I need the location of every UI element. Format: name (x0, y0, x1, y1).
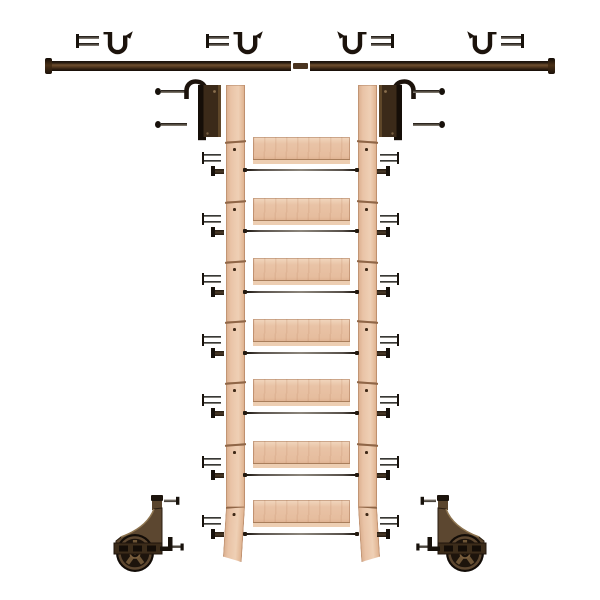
step-bolt-icon (386, 408, 390, 418)
step-screw-icon (380, 221, 397, 223)
step-screw-icon (380, 281, 397, 283)
joint-screw-hole (365, 513, 368, 516)
step-screw-icon (380, 275, 397, 277)
step-screw-icon (380, 402, 397, 404)
side-rail-segment (358, 85, 377, 142)
joint-screw-hole (232, 513, 235, 516)
step-screw-icon (380, 523, 397, 525)
step-bolt-icon (386, 470, 390, 480)
rail-scarf-joint (225, 260, 246, 264)
step-bolt-icon (215, 351, 224, 356)
step-screw-icon (380, 336, 397, 338)
step-screw-icon (204, 154, 221, 156)
step-screw-icon (397, 521, 399, 527)
rail-scarf-joint (357, 443, 378, 447)
ladder-step (253, 441, 350, 468)
joint-screw-hole (365, 451, 368, 454)
rail-scarf-joint (357, 260, 378, 264)
step-support-rod (246, 474, 356, 476)
step-screw-icon (204, 336, 221, 338)
ladder-step (253, 198, 350, 225)
step-support-rod (246, 230, 356, 232)
rail-scarf-joint (225, 140, 246, 144)
roller-assembly-left (88, 486, 188, 578)
step-bolt-icon (377, 473, 386, 478)
step-fastener-set-left (202, 456, 225, 478)
step-support-rod (246, 291, 356, 293)
side-rail-segment (358, 262, 377, 322)
joint-screw-hole (233, 451, 236, 454)
step-fastener-set-right (376, 273, 399, 295)
joint-screw-hole (365, 148, 368, 151)
step-screw-icon (204, 342, 221, 344)
step-screw-icon (204, 275, 221, 277)
side-rail-segment (358, 202, 377, 262)
roller-assembly-right (412, 486, 512, 578)
step-screw-icon (380, 458, 397, 460)
step-fastener-set-right (376, 456, 399, 478)
side-rail-segment (358, 383, 377, 445)
rail-scarf-joint (225, 320, 246, 324)
step-screw-icon (397, 340, 399, 346)
step-bolt-icon (386, 348, 390, 358)
product-image-rolling-ladder-kit (0, 0, 600, 600)
step-screw-icon (380, 160, 397, 162)
step-bolt-icon (215, 230, 224, 235)
step-screw-icon (204, 464, 221, 466)
step-screw-icon (204, 402, 221, 404)
step-screw-icon (204, 517, 221, 519)
step-screw-icon (380, 396, 397, 398)
step-screw-icon (204, 215, 221, 217)
step-support-rod (246, 412, 356, 414)
step-screw-icon (397, 462, 399, 468)
joint-screw-hole (233, 208, 236, 211)
joint-screw-hole (365, 389, 368, 392)
step-fastener-set-right (376, 334, 399, 356)
step-screw-icon (380, 215, 397, 217)
side-rail-segment (358, 142, 377, 202)
step-screw-icon (204, 281, 221, 283)
step-bolt-icon (215, 290, 224, 295)
side-rail-segment (358, 322, 377, 383)
step-bolt-icon (377, 351, 386, 356)
step-screw-icon (397, 219, 399, 225)
step-bolt-icon (377, 169, 386, 174)
joint-screw-hole (233, 328, 236, 331)
rail-scarf-joint (225, 200, 246, 204)
joint-screw-hole (233, 268, 236, 271)
step-screw-icon (380, 517, 397, 519)
step-screw-icon (204, 523, 221, 525)
step-fastener-set-left (202, 515, 225, 537)
step-screw-icon (397, 279, 399, 285)
side-rail-segment (223, 507, 245, 562)
step-support-rod (246, 533, 356, 535)
side-rail-segment (226, 85, 245, 142)
side-rail-segment (358, 445, 377, 507)
step-screw-icon (204, 458, 221, 460)
step-screw-icon (204, 396, 221, 398)
step-fastener-set-left (202, 273, 225, 295)
step-screw-icon (397, 400, 399, 406)
joint-screw-hole (365, 268, 368, 271)
step-bolt-icon (386, 227, 390, 237)
step-fastener-set-left (202, 213, 225, 235)
step-screw-icon (380, 464, 397, 466)
step-screw-icon (204, 221, 221, 223)
ladder-step (253, 379, 350, 406)
ladder-step (253, 137, 350, 164)
step-bolt-icon (215, 411, 224, 416)
rail-scarf-joint (225, 443, 246, 447)
step-bolt-icon (215, 169, 224, 174)
step-bolt-icon (377, 411, 386, 416)
step-fastener-set-left (202, 334, 225, 356)
step-fastener-set-right (376, 152, 399, 174)
joint-screw-hole (233, 389, 236, 392)
step-support-rod (246, 169, 356, 171)
step-bolt-icon (377, 230, 386, 235)
step-screw-icon (397, 158, 399, 164)
step-screw-icon (380, 342, 397, 344)
step-bolt-icon (215, 532, 224, 537)
step-fastener-set-right (376, 515, 399, 537)
rail-scarf-joint (357, 381, 378, 385)
ladder-step (253, 258, 350, 285)
rail-scarf-joint (357, 320, 378, 324)
step-bolt-icon (386, 287, 390, 297)
step-fastener-set-left (202, 394, 225, 416)
joint-screw-hole (365, 208, 368, 211)
joint-screw-hole (365, 328, 368, 331)
step-fastener-set-right (376, 394, 399, 416)
step-bolt-icon (386, 166, 390, 176)
ladder-step (253, 319, 350, 346)
rail-scarf-joint (225, 381, 246, 385)
step-fastener-set-right (376, 213, 399, 235)
ladder-step (253, 500, 350, 527)
step-bolt-icon (215, 473, 224, 478)
step-fastener-set-left (202, 152, 225, 174)
step-screw-icon (380, 154, 397, 156)
step-bolt-icon (377, 290, 386, 295)
rail-scarf-joint (357, 200, 378, 204)
joint-screw-hole (233, 148, 236, 151)
side-rail-segment (226, 142, 245, 202)
step-bolt-icon (377, 532, 386, 537)
rail-scarf-joint (357, 140, 378, 144)
step-support-rod (246, 352, 356, 354)
step-bolt-icon (386, 529, 390, 539)
step-screw-icon (204, 160, 221, 162)
